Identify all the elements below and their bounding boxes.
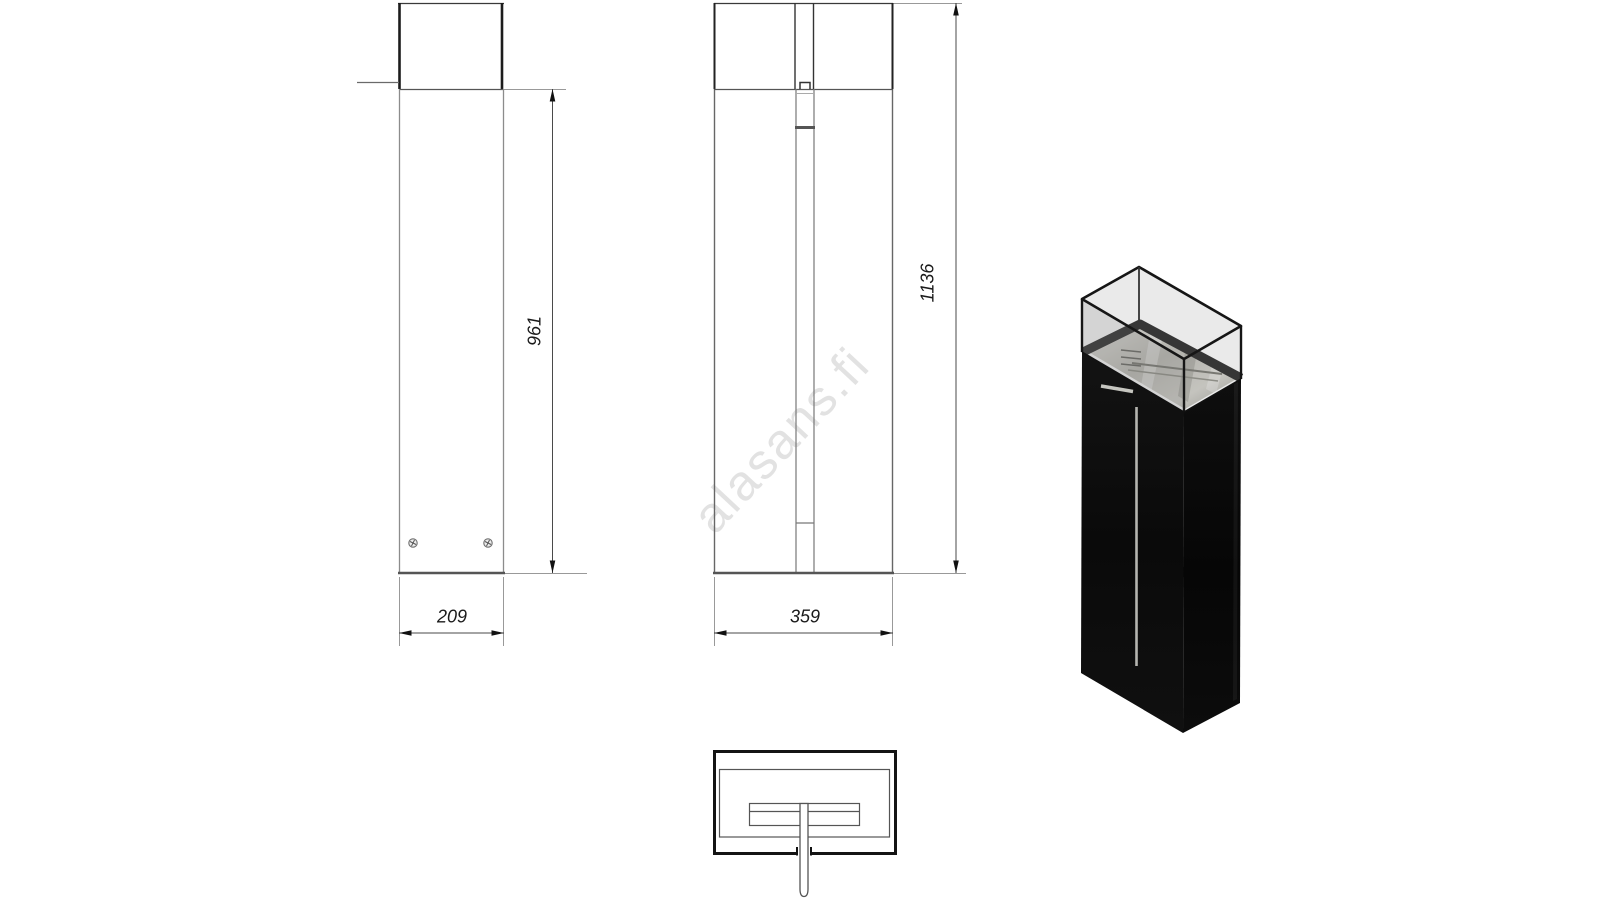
- dim-front-height: 1136: [918, 264, 939, 303]
- screw-icon: [409, 539, 417, 547]
- render-3d: [1081, 267, 1241, 733]
- body-front-right-face: [1183, 379, 1241, 733]
- body-front-left-face: [1081, 352, 1184, 733]
- dim-side-height-lines: [550, 89, 556, 573]
- drawing-canvas: alasans.fi: [0, 0, 1600, 900]
- dim-front-height-lines: [953, 3, 959, 573]
- burner-bracket: [800, 83, 810, 90]
- screw-icon: [484, 539, 492, 547]
- dim-side-height: 961: [525, 316, 546, 346]
- plan-view: [715, 752, 896, 897]
- technical-drawing: [0, 0, 1600, 900]
- dim-side-width: 209: [437, 607, 467, 628]
- dim-front-width: 359: [790, 607, 820, 628]
- plan-fuel-pipe: [800, 804, 808, 897]
- front-view: [713, 3, 966, 646]
- side-view: [357, 3, 587, 646]
